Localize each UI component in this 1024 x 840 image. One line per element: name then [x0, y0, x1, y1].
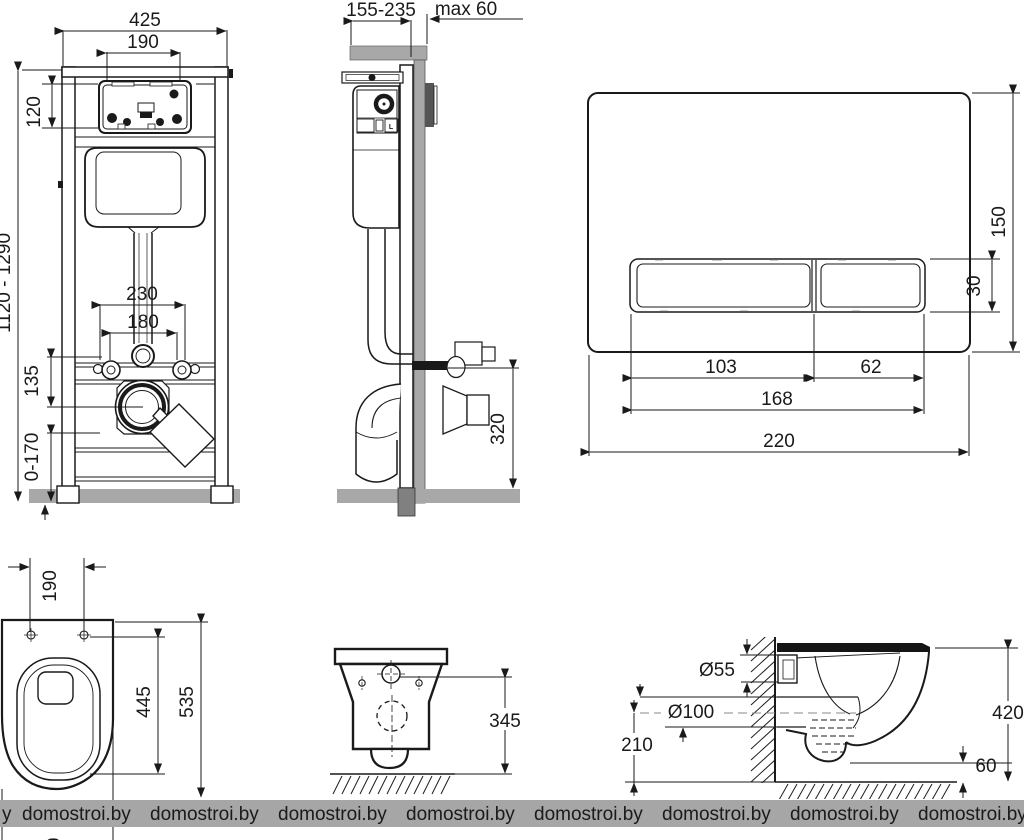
water-connection [94, 345, 200, 379]
dim-height-range: 1120 - 1290 [0, 233, 15, 333]
watermark-text: domostroi.by [662, 804, 771, 825]
dim-bowl-total-height: 420 [992, 703, 1024, 724]
dim-length-to-holes: 445 [134, 686, 155, 718]
inlet-rod [412, 361, 448, 370]
dim-leg-adjust: 0-170 [22, 433, 43, 482]
watermark-bar: ydomostroi.bydomostroi.bydomostroi.bydom… [0, 800, 1024, 827]
dim-button1-width: 103 [705, 357, 737, 378]
drawing-canvas: 425 190 120 1120 - 1290 230 180 135 0-17… [0, 0, 1024, 840]
dim-bolt-spacing: 180 [127, 312, 159, 333]
dim-opening-height: 120 [24, 96, 45, 128]
flush-plate [588, 93, 970, 352]
cistern-label: L [389, 124, 394, 131]
p-trap [356, 384, 401, 482]
watermark-text: domostroi.by [406, 804, 515, 825]
flush-plate-view [588, 93, 970, 352]
dim-opening-width: 190 [127, 32, 159, 53]
wall-band [414, 60, 425, 503]
watermark-text: domostroi.by [22, 804, 131, 825]
waste-connector [443, 386, 489, 434]
dim-wall-max: max 60 [435, 0, 497, 20]
access-panel [99, 81, 191, 133]
dim-button2-width: 62 [860, 357, 881, 378]
watermark-text: domostroi.by [790, 804, 899, 825]
ceiling-bracket [350, 46, 427, 60]
frame-foot-side [398, 488, 415, 516]
cistern-side [353, 86, 399, 228]
dim-plate-height: 150 [989, 206, 1010, 238]
watermark-text: domostroi.by [150, 804, 259, 825]
dim-rim-height: 345 [489, 711, 521, 732]
watermark-text: domostroi.by [918, 804, 1024, 825]
watermark-text: y [2, 804, 12, 825]
dim-outlet-offset: 135 [22, 365, 43, 397]
wall-anchor [425, 83, 434, 127]
watermark-text: domostroi.by [278, 804, 387, 825]
dim-depth-range: 155-235 [346, 0, 416, 21]
dim-buttons-width: 168 [761, 389, 793, 410]
dim-outlet-diameter: Ø100 [668, 702, 714, 723]
frame-post-side [400, 65, 413, 488]
bowl-rear-view [330, 649, 455, 794]
outlet-front [116, 381, 215, 468]
dim-plate-width: 220 [763, 431, 795, 452]
dim-inlet-diameter: Ø55 [699, 660, 735, 681]
dim-outlet-height-side: 320 [488, 413, 509, 445]
dim-hole-spacing: 190 [40, 570, 61, 602]
seat-edge [777, 643, 930, 652]
dim-outlet-center-height: 210 [621, 735, 653, 756]
dim-button-height: 30 [964, 275, 985, 296]
dim-total-length: 535 [177, 686, 198, 718]
technical-drawing-page: 425 190 120 1120 - 1290 230 180 135 0-17… [0, 0, 1024, 840]
watermark-text: domostroi.by [534, 804, 643, 825]
water-level [810, 720, 856, 752]
dim-anchor-spacing: 230 [126, 284, 158, 305]
dim-floor-clearance: 60 [975, 756, 996, 777]
inlet-assembly [447, 342, 495, 378]
dim-frame-width: 425 [129, 10, 161, 31]
floor-bar-side [337, 489, 520, 503]
